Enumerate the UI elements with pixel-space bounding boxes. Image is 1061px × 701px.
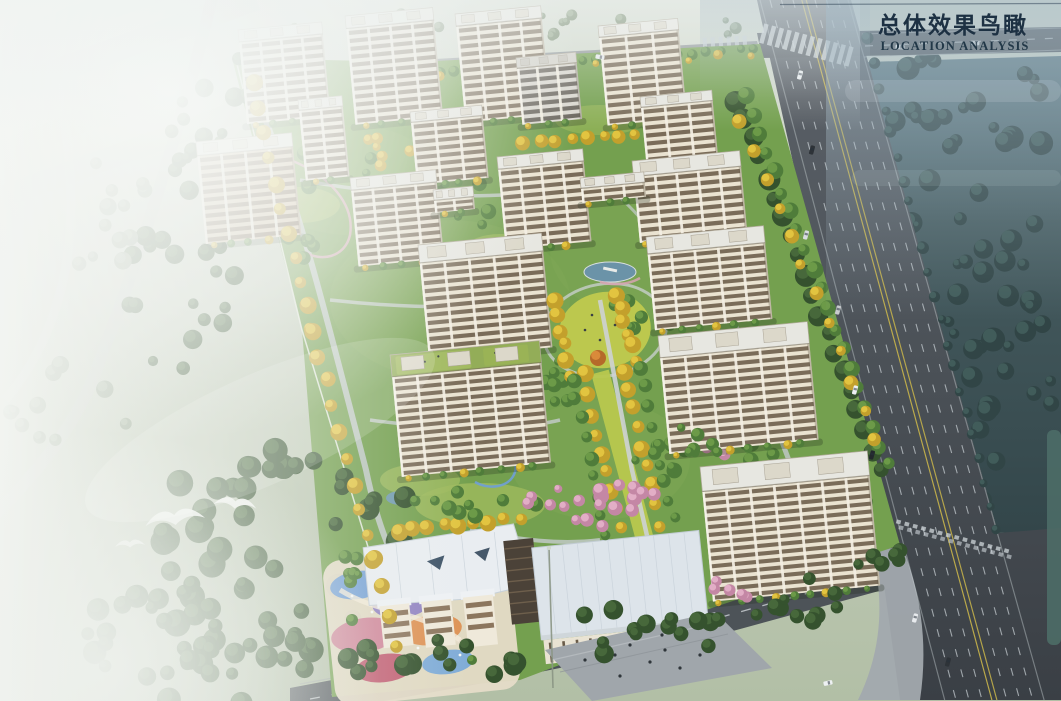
tree-crown	[640, 379, 648, 387]
person	[628, 643, 631, 646]
tree-crown	[580, 387, 589, 396]
tree-crown	[589, 471, 595, 477]
tree-crown	[804, 573, 811, 580]
tree-crown	[582, 432, 588, 438]
tree-crown	[978, 402, 990, 414]
tree-crown	[861, 406, 867, 412]
tree-crown	[623, 330, 630, 337]
tree-crown	[949, 360, 956, 367]
rooftop-structure	[728, 230, 747, 242]
tree-crown	[545, 500, 552, 507]
tree-crown	[791, 610, 799, 618]
haze-band	[852, 170, 1061, 186]
fog-intersection	[700, 0, 870, 100]
tree-crown	[963, 367, 975, 379]
tree-crown	[875, 557, 884, 566]
tree-crown	[630, 628, 638, 636]
tree-crown	[832, 602, 839, 609]
tree-crown	[975, 454, 981, 460]
tree-crown	[1016, 322, 1028, 334]
tree-crown	[805, 613, 815, 623]
rooftop-structure	[764, 462, 791, 479]
rooftop-structure	[673, 158, 690, 169]
tree-crown	[845, 376, 854, 385]
tree-crown	[712, 577, 718, 583]
tree-crown	[621, 383, 630, 392]
tree-crown	[487, 666, 497, 676]
tree-crown	[596, 511, 602, 517]
tree-crown	[636, 311, 644, 319]
tree-crown	[572, 515, 578, 521]
tree-crown	[856, 421, 867, 432]
tree-crown	[666, 613, 674, 621]
pond	[584, 262, 636, 282]
tree-crown	[616, 301, 625, 310]
tree-crown	[527, 492, 534, 499]
tree-crown	[555, 485, 560, 490]
tree-crown	[811, 287, 819, 295]
tree-crown	[663, 497, 669, 503]
tree-crown	[775, 204, 781, 210]
tree-crown	[628, 482, 636, 490]
tree-crown	[616, 522, 623, 529]
haze-band	[845, 80, 1061, 102]
tree-crown	[867, 549, 876, 558]
tree-crown	[637, 487, 645, 495]
tree-crown	[654, 440, 661, 447]
person	[584, 329, 587, 332]
rooftop-structure	[763, 327, 787, 343]
rooftop-structure	[640, 161, 657, 172]
tree-crown	[616, 315, 625, 324]
tree-crown	[799, 245, 806, 252]
rooftop-structure	[817, 457, 844, 474]
tree-crown	[498, 513, 505, 520]
tree-crown	[692, 429, 700, 437]
aerial-rendering-page: 总体效果鸟瞰 LOCATION ANALYSIS	[0, 0, 1061, 701]
tree-crown	[597, 521, 604, 528]
tree-crown	[992, 525, 997, 530]
rooftop-structure	[585, 178, 595, 185]
tree-crown	[712, 613, 720, 621]
tree-crown	[649, 447, 657, 455]
tree-crown	[498, 495, 505, 502]
tree-crown	[678, 424, 683, 429]
person	[591, 314, 594, 317]
tree-crown	[634, 362, 643, 371]
tree-crown	[737, 589, 744, 596]
tree-crown	[968, 429, 974, 435]
tree-crown	[884, 458, 891, 465]
person	[678, 666, 681, 669]
tree-crown	[658, 475, 666, 483]
tree-crown	[875, 463, 884, 472]
tree-crown	[944, 341, 950, 347]
tree-crown	[656, 461, 662, 467]
tree-crown	[617, 365, 627, 375]
tree-crown	[965, 340, 977, 352]
tree-crown	[591, 351, 600, 360]
tree-crown	[998, 363, 1008, 373]
rooftop-structure	[625, 174, 635, 181]
tree-crown	[586, 453, 594, 461]
tree-crown	[642, 400, 650, 408]
tree-crown	[655, 522, 662, 529]
tree-crown	[854, 560, 860, 566]
tree-crown	[574, 495, 581, 502]
tree-crown	[826, 346, 836, 356]
tree-crown	[647, 423, 653, 429]
tree-crown	[780, 595, 786, 601]
tree-crown	[776, 189, 783, 196]
tree-crown	[634, 441, 644, 451]
tree-crown	[1004, 341, 1011, 348]
tree-crown	[560, 502, 566, 508]
tree-crown	[508, 653, 520, 665]
tree-crown	[848, 401, 859, 412]
tree-crown	[786, 230, 794, 238]
person	[663, 648, 666, 651]
person	[618, 674, 621, 677]
light-pole-head	[547, 546, 551, 550]
tree-crown	[752, 610, 759, 617]
tree-crown	[690, 612, 701, 623]
residential-tower	[695, 451, 885, 609]
tree-crown	[1044, 397, 1053, 406]
page-subtitle: LOCATION ANALYSIS	[881, 39, 1030, 53]
tree-crown	[744, 453, 753, 462]
tree-crown	[769, 599, 779, 609]
rooftop-structure	[707, 155, 724, 166]
tree-crown	[837, 346, 843, 352]
tree-crown	[713, 448, 719, 454]
person	[599, 339, 602, 342]
tree-crown	[601, 465, 608, 472]
tree-crown	[642, 460, 649, 467]
tree-crown	[625, 337, 635, 347]
tree-crown	[595, 499, 602, 506]
tree-crown	[630, 130, 636, 136]
tree-crown	[594, 484, 603, 493]
person	[583, 658, 586, 661]
tree-crown	[987, 503, 992, 508]
tree-crown	[598, 637, 605, 644]
tree-crown	[523, 498, 530, 505]
residential-tower	[641, 225, 777, 337]
tree-crown	[845, 362, 855, 372]
tree-crown	[612, 131, 620, 139]
tree-crown	[796, 260, 802, 266]
tree-crown	[671, 513, 677, 519]
rooftop-structure	[604, 176, 614, 183]
tree-crown	[632, 457, 637, 462]
tree-crown	[601, 131, 607, 137]
rooftop-structure	[691, 234, 710, 246]
tree-crown	[983, 329, 997, 343]
tree-crown	[605, 601, 616, 612]
tree-crown	[725, 585, 732, 592]
tree-crown	[581, 514, 589, 522]
person	[698, 653, 701, 656]
masterplan-aerial-view: 总体效果鸟瞰 LOCATION ANALYSIS	[0, 0, 1061, 701]
tree-crown	[609, 288, 619, 298]
rooftop-structure	[712, 467, 739, 484]
tree-crown	[767, 163, 777, 173]
page-title: 总体效果鸟瞰	[878, 12, 1028, 38]
person	[660, 633, 663, 636]
residential-tower	[653, 321, 823, 461]
tree-crown	[956, 388, 961, 393]
tree-crown	[581, 131, 589, 139]
tree-crown	[626, 400, 635, 409]
tree-crown	[748, 145, 756, 153]
tree-crown	[626, 504, 634, 512]
tree-crown	[867, 421, 876, 430]
rooftop-structure	[654, 237, 673, 249]
person	[614, 324, 617, 327]
canal-median	[1047, 430, 1061, 645]
tree-crown	[807, 262, 817, 272]
tree-crown	[609, 501, 618, 510]
tree-crown	[980, 480, 985, 485]
tree-crown	[702, 639, 710, 647]
tree-crown	[950, 329, 956, 335]
tree-crown	[685, 448, 691, 454]
rooftop-structure	[715, 332, 739, 348]
tree-crown	[828, 587, 837, 596]
tree-crown	[614, 480, 621, 487]
tree-crown	[709, 584, 716, 591]
tree-crown	[668, 463, 674, 469]
tree-crown	[1046, 376, 1052, 382]
tree-crown	[963, 408, 969, 414]
tree-crown	[517, 514, 524, 521]
tree-crown	[809, 307, 821, 319]
tree-crown	[577, 607, 587, 617]
tree-crown	[761, 148, 768, 155]
tree-crown	[649, 488, 657, 496]
tree-crown	[646, 477, 656, 487]
tree-crown	[707, 438, 715, 446]
person	[648, 660, 651, 663]
tree-crown	[889, 548, 898, 557]
tree-crown	[762, 174, 770, 182]
rooftop-structure	[669, 336, 693, 352]
tree-crown	[633, 421, 640, 428]
tree-crown	[1028, 387, 1037, 396]
tree-crown	[988, 453, 999, 464]
tree-crown	[868, 433, 876, 441]
